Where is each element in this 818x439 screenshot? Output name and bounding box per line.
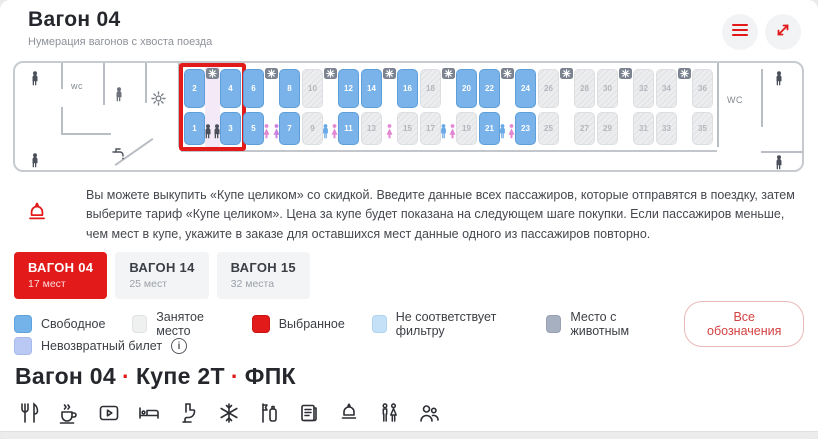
hygiene-kit-icon (255, 399, 282, 426)
passengers-icon (415, 399, 442, 426)
seat-29: 29 (597, 112, 618, 145)
expand-icon (775, 22, 791, 43)
media-icon (95, 399, 122, 426)
restaurant-icon (15, 399, 42, 426)
wc-label-left: wc (71, 81, 83, 91)
seat-33: 33 (656, 112, 677, 145)
seat-selection-page: Вагон 04 Нумерация вагонов с хвоста поез… (0, 0, 818, 439)
compartment-8: 30322931 (596, 66, 655, 150)
door-person-icon (31, 71, 39, 91)
ventilation-icon (442, 68, 455, 79)
wagon-tab-04[interactable]: ВАГОН 04 17 мест (14, 252, 107, 299)
nonrefundable-swatch (14, 337, 32, 355)
male-icon (322, 124, 329, 140)
info-icon[interactable]: i (171, 338, 187, 354)
discount-stamp-icon (24, 200, 50, 244)
wagon-tab-15[interactable]: ВАГОН 15 32 места (217, 252, 310, 299)
female-icon (262, 124, 271, 140)
legend-item-with-animal: Место с животным (546, 310, 657, 338)
door-person-icon (31, 153, 39, 173)
seat-27: 27 (574, 112, 595, 145)
legend-swatch-occupied (132, 315, 147, 333)
legend-swatch-filter-mismatch (372, 315, 387, 333)
seat-34: 34 (656, 69, 677, 108)
seat-2[interactable]: 2 (184, 69, 205, 108)
person-icon (31, 71, 39, 86)
compartment-gender-icon (478, 124, 537, 140)
compartment-gender-icon (360, 124, 419, 140)
bed-icon (135, 399, 162, 426)
legend-list-button[interactable] (722, 14, 758, 50)
seat-18: 18 (420, 69, 441, 108)
ventilation-icon (619, 68, 632, 79)
ventilation-icon (206, 68, 219, 79)
legend-item-free: Свободное (14, 315, 105, 333)
wagon-tabs: ВАГОН 04 17 мест ВАГОН 14 25 мест ВАГОН … (14, 252, 310, 299)
seat-31: 31 (633, 112, 654, 145)
door-person-icon (775, 71, 783, 91)
page-subtitle: Нумерация вагонов с хвоста поезда (28, 36, 212, 48)
female-icon (272, 124, 281, 140)
person-icon (775, 71, 783, 86)
compartment-3: 1012911 (301, 66, 360, 150)
legend-swatch-free (14, 315, 32, 333)
person-icon (775, 155, 783, 170)
seat-36: 36 (692, 69, 713, 108)
seat-32: 32 (633, 69, 654, 108)
nonrefundable-label: Невозвратный билет (41, 339, 162, 353)
person-icon (115, 87, 123, 102)
ventilation-icon (678, 68, 691, 79)
coupe-discount-notice: Вы можете выкупить «Купе целиком» со ски… (24, 186, 800, 244)
seat-14[interactable]: 14 (361, 69, 382, 108)
ventilation-icon (265, 68, 278, 79)
seat-8[interactable]: 8 (279, 69, 300, 108)
ventilation-icon (560, 68, 573, 79)
toilet-icon (175, 399, 202, 426)
ventilation-icon (383, 68, 396, 79)
notice-text: Вы можете выкупить «Купе целиком» со ски… (86, 186, 800, 244)
compartment-7: 26282527 (537, 66, 596, 150)
seat-28: 28 (574, 69, 595, 108)
tea-icon (55, 399, 82, 426)
ventilation-icon (324, 68, 337, 79)
heading-separator: · (225, 363, 245, 389)
compartment-6: 22242123 (478, 66, 537, 150)
seat-10: 10 (302, 69, 323, 108)
legend-swatch-with-animal (546, 315, 561, 333)
wc-label-right: WC (727, 95, 743, 105)
water-tap-icon (111, 147, 125, 166)
wc-mf-icon (375, 399, 402, 426)
compartment-gender-icon (242, 124, 301, 140)
fullscreen-button[interactable] (765, 14, 801, 50)
list-icon (732, 23, 748, 42)
door-person-icon (775, 155, 783, 175)
ventilation-icon (501, 68, 514, 79)
compartment-9: 34363335 (655, 66, 714, 150)
page-title: Вагон 04 (28, 8, 120, 32)
air-conditioning-icon (215, 399, 242, 426)
female-icon (330, 124, 339, 140)
compartment-2: 6857 (242, 66, 301, 150)
male-icon (440, 124, 447, 140)
gear-icon (151, 91, 166, 111)
seat-26: 26 (538, 69, 559, 108)
seat-25: 25 (538, 112, 559, 145)
all-legend-button[interactable]: Все обозначения (684, 301, 804, 347)
compartment-gender-icon (419, 124, 478, 140)
legend-item-selected: Выбранное (252, 315, 345, 333)
seat-35: 35 (692, 112, 713, 145)
person-icon (31, 153, 39, 168)
compartment-4: 14161315 (360, 66, 419, 150)
seat-30: 30 (597, 69, 618, 108)
female-icon (448, 124, 457, 140)
car-class-heading: Вагон 04·Купе 2Т·ФПК (15, 363, 296, 390)
legend-item-filter-mismatch: Не соответствует фильтру (372, 310, 520, 338)
nonrefundable-legend: Невозвратный билет i (14, 337, 187, 355)
car-map: wc WC 2413685710129111416131518201719222… (13, 61, 804, 172)
legend-swatch-selected (252, 315, 270, 333)
seat-6[interactable]: 6 (243, 69, 264, 108)
compartment-1[interactable]: 2413 (183, 66, 242, 150)
wagon-tab-14[interactable]: ВАГОН 14 25 мест (115, 252, 208, 299)
seat-22[interactable]: 22 (479, 69, 500, 108)
heading-separator: · (116, 363, 136, 389)
seat-20[interactable]: 20 (456, 69, 477, 108)
person-icon (204, 124, 212, 139)
press-icon (295, 399, 322, 426)
male-icon (499, 124, 506, 140)
compartment-gender-icon (301, 124, 360, 140)
seat-12[interactable]: 12 (338, 69, 359, 108)
attendant-icon (115, 87, 123, 107)
amenities-row (15, 399, 442, 426)
page-bottom-edge (0, 431, 818, 439)
seat-4[interactable]: 4 (220, 69, 241, 108)
discount-icon (335, 399, 362, 426)
legend-item-occupied: Занятое место (132, 310, 224, 338)
seat-24[interactable]: 24 (515, 69, 536, 108)
person-icon (213, 124, 221, 139)
compartment-gender-icon (183, 124, 242, 139)
seat-16[interactable]: 16 (397, 69, 418, 108)
female-icon (507, 124, 516, 140)
compartment-5: 18201719 (419, 66, 478, 150)
female-icon (385, 124, 394, 140)
